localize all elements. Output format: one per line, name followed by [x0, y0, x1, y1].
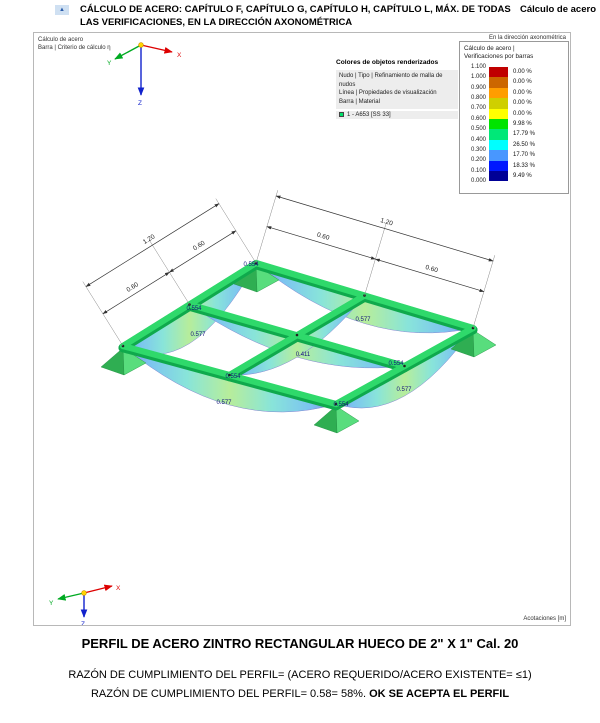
value-label: 0.554 [225, 374, 241, 380]
scale-band [489, 67, 508, 77]
scale-band [489, 88, 508, 98]
value-label: 0.577 [355, 317, 371, 323]
result-scale-panel: Cálculo de acero | Verificaciones por ba… [459, 41, 569, 194]
legend-title: Colores de objetos renderizados [336, 59, 458, 66]
axis-triad-top: X Y Z [107, 43, 182, 107]
axis-y-label: Y [49, 600, 54, 607]
result-description: Cálculo de acero Barra | Criterio de cál… [38, 36, 111, 52]
value-label: 0.554 [388, 361, 404, 367]
section-marker-icon[interactable]: ▲ [55, 5, 69, 15]
scale-title-line1: Cálculo de acero | [464, 45, 568, 53]
material-legend-row: 1 - A653 [SS 33] [336, 111, 458, 119]
scale-band [489, 109, 508, 119]
legend-line: Línea | Propiedades de visualización [339, 89, 455, 98]
scale-band [489, 140, 508, 150]
scale-band [489, 161, 508, 171]
render-colors-legend: Colores de objetos renderizados Nudo | T… [336, 59, 458, 119]
value-label: 0.554 [186, 306, 202, 312]
axis-x-label: X [116, 585, 121, 592]
axis-origin-dot [82, 591, 87, 596]
axis-y-label: Y [107, 60, 112, 67]
header-right-label: Cálculo de acero [520, 4, 596, 15]
dim-label: 0.60 [424, 264, 439, 275]
scale-band [489, 119, 508, 129]
scale-band [489, 150, 508, 160]
graphics-viewport[interactable]: 0.60 0.60 1.20 0.60 0.60 1.20 0.554 0.57… [33, 32, 571, 626]
scale-band [489, 77, 508, 87]
scale-percentages: 0.00 % 0.00 % 0.00 % 0.00 % 0.00 % 9.98 … [508, 67, 535, 181]
dimension-lines [86, 196, 493, 314]
scale-band [489, 129, 508, 139]
value-label: 0.554 [333, 402, 349, 408]
scale-title: Cálculo de acero | Verificaciones por ba… [460, 42, 568, 61]
scale-band [489, 171, 508, 181]
scale-body: 1.1001.000 0.9000.800 0.7000.600 0.5000.… [464, 67, 535, 187]
figure-caption: PERFIL DE ACERO ZINTRO RECTANGULAR HUECO… [0, 636, 600, 651]
scale-title-line2: Verificaciones por barras [464, 53, 568, 61]
scale-band [489, 98, 508, 108]
scale-ticks: 1.1001.000 0.9000.800 0.7000.600 0.5000.… [464, 64, 489, 184]
report-page: ▲ CÁLCULO DE ACERO: CAPÍTULO F, CAPÍTULO… [0, 0, 600, 723]
compliance-formula: RAZÓN DE CUMPLIMIENTO DEL PERFIL= (ACERO… [0, 669, 600, 681]
axis-x-label: X [177, 52, 182, 59]
section-title-line1: CÁLCULO DE ACERO: CAPÍTULO F, CAPÍTULO G… [80, 3, 520, 16]
axis-origin-dot [139, 43, 144, 48]
material-swatch [339, 112, 344, 117]
value-label: 0.577 [396, 387, 412, 393]
material-label: 1 - A653 [SS 33] [347, 112, 391, 118]
section-title-line2: LAS VERIFICACIONES, EN LA DIRECCIÓN AXON… [80, 16, 520, 29]
value-label: 0.577 [216, 400, 232, 406]
dim-label: 0.60 [316, 231, 331, 242]
axis-z-label: Z [81, 621, 85, 625]
value-label: 0.411 [296, 352, 311, 358]
section-title: CÁLCULO DE ACERO: CAPÍTULO F, CAPÍTULO G… [80, 3, 520, 30]
compliance-result-value: RAZÓN DE CUMPLIMIENTO DEL PERFIL= 0.58= … [91, 688, 369, 700]
legend-lines: Nudo | Tipo | Refinamiento de malla de n… [336, 70, 458, 109]
legend-line: Barra | Material [339, 98, 455, 107]
dimensions-unit-label: Acotaciones [m] [523, 616, 566, 622]
scale-color-bands [489, 67, 508, 181]
axis-triad-bottom: X Y Z [49, 585, 121, 625]
triangle-icon: ▲ [59, 7, 65, 13]
result-description-line2: Barra | Criterio de cálculo η [38, 44, 111, 52]
value-label: 0.577 [190, 332, 206, 338]
dim-label: 1.20 [379, 217, 394, 228]
result-description-line1: Cálculo de acero [38, 36, 111, 44]
axis-z-label: Z [138, 100, 142, 107]
legend-line: Nudo | Tipo | Refinamiento de malla de n… [339, 72, 455, 89]
value-label: 0.554 [243, 262, 259, 268]
compliance-result: RAZÓN DE CUMPLIMIENTO DEL PERFIL= 0.58= … [0, 688, 600, 700]
compliance-result-verdict: OK SE ACEPTA EL PERFIL [369, 688, 509, 700]
